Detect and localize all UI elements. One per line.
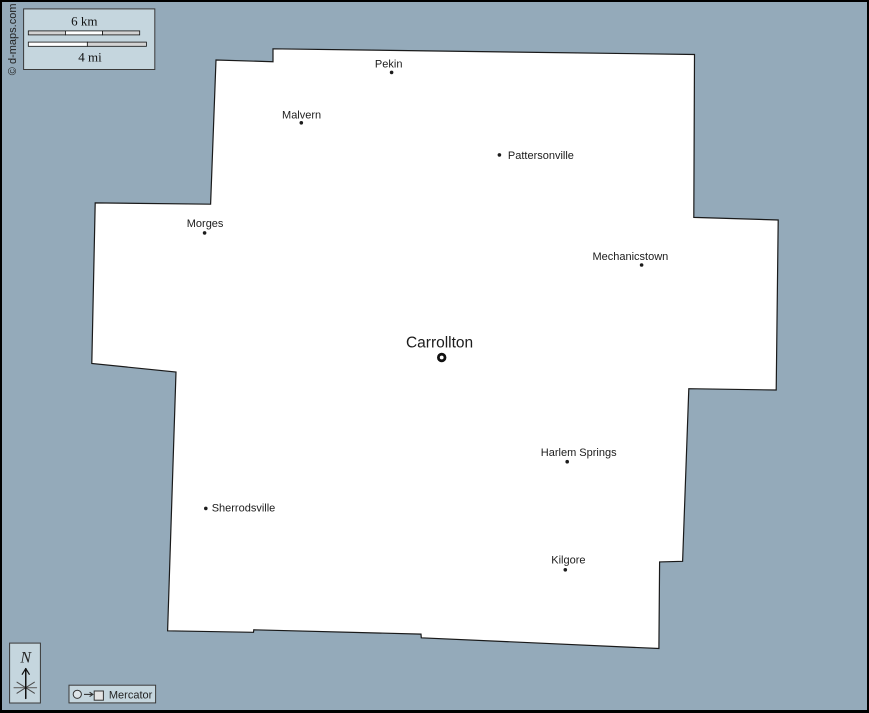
svg-text:Kilgore: Kilgore — [551, 555, 585, 567]
svg-text:Pattersonville: Pattersonville — [508, 150, 574, 162]
svg-text:Mechanicstown: Mechanicstown — [592, 251, 668, 263]
svg-text:Mercator: Mercator — [109, 689, 153, 701]
svg-text:4 mi: 4 mi — [78, 50, 102, 65]
svg-text:Sherrodsville: Sherrodsville — [212, 503, 276, 515]
svg-text:Morges: Morges — [187, 218, 224, 230]
svg-text:Harlem Springs: Harlem Springs — [541, 447, 617, 459]
svg-text:6 km: 6 km — [71, 13, 97, 28]
svg-text:Malvern: Malvern — [282, 109, 321, 121]
svg-text:© d-maps.com: © d-maps.com — [7, 4, 19, 76]
svg-text:N: N — [19, 649, 32, 666]
svg-text:Carrollton: Carrollton — [406, 335, 473, 352]
svg-text:Pekin: Pekin — [375, 59, 403, 71]
